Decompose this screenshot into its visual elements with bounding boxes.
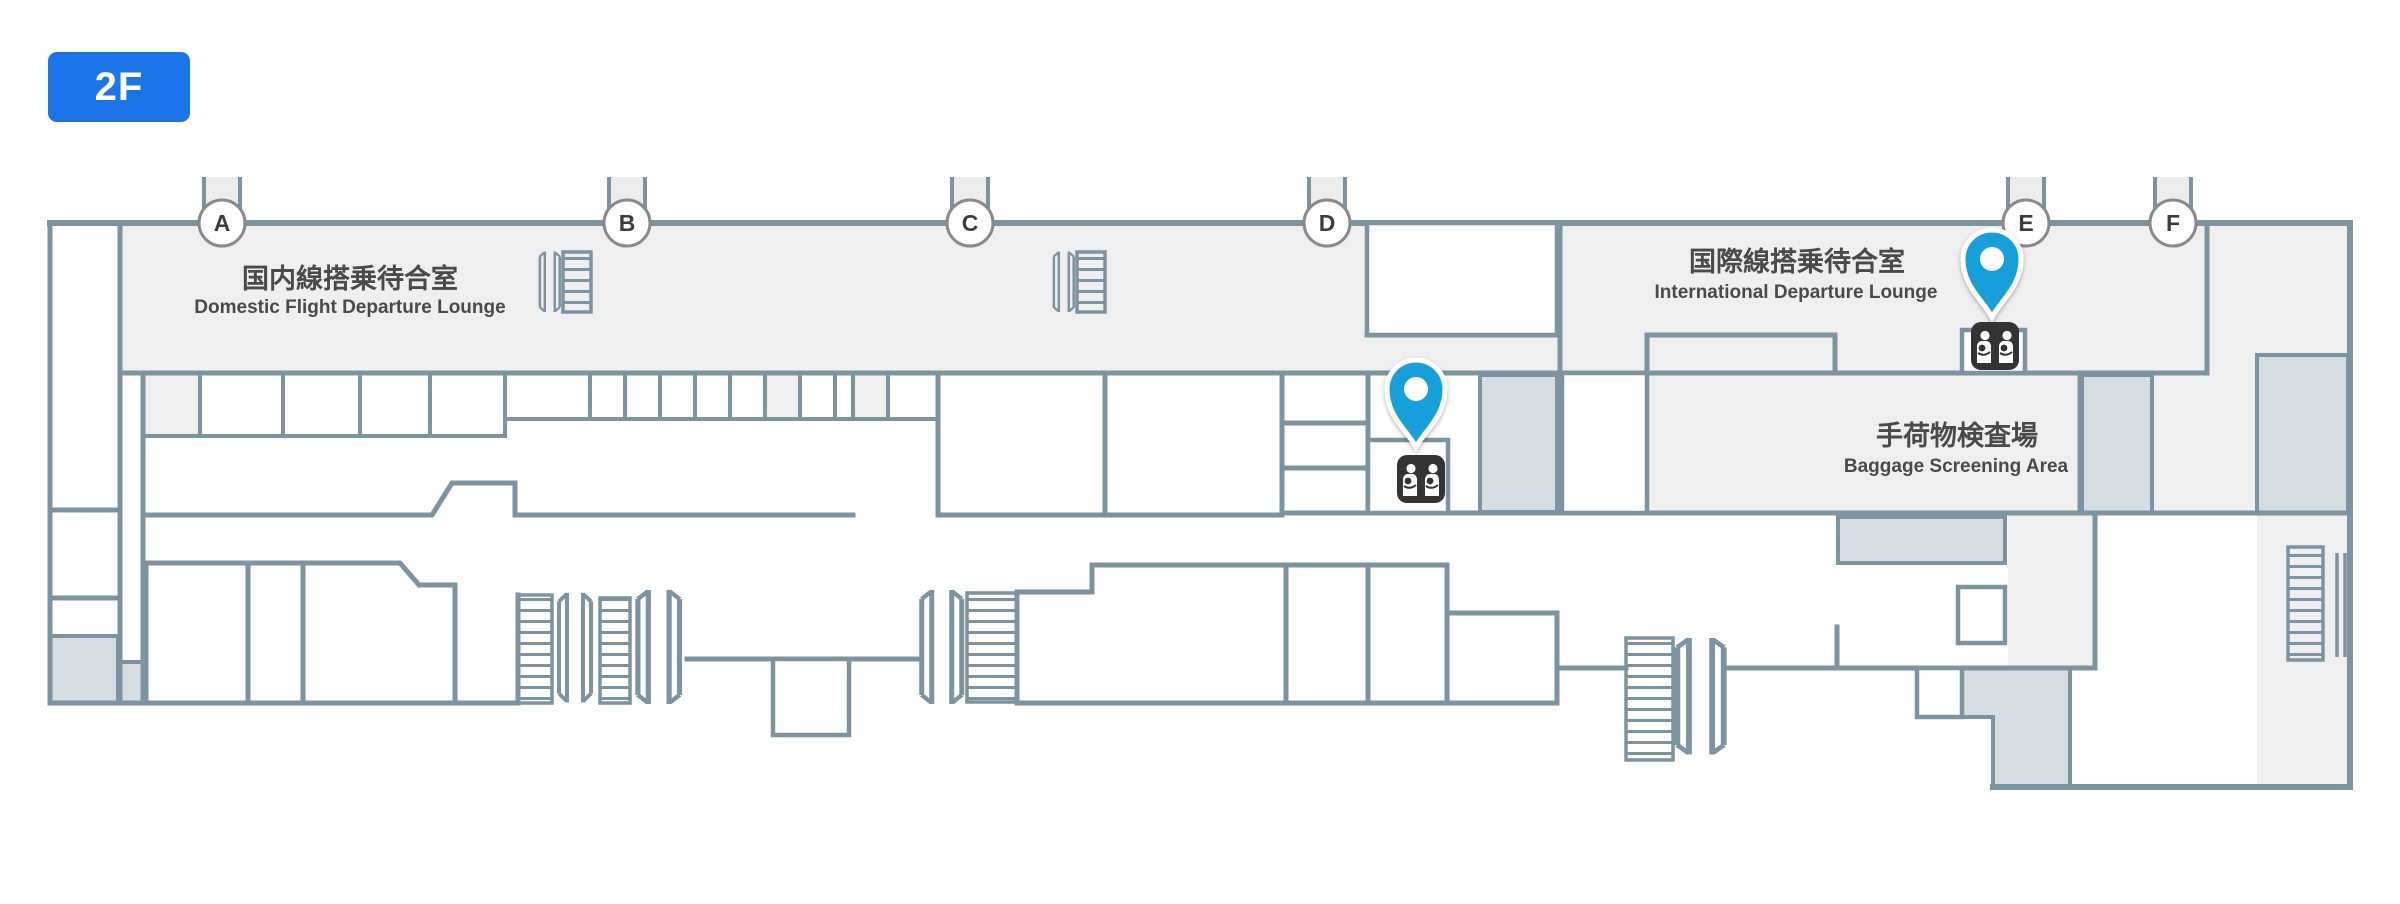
nursing-room-icon-near-e: [1971, 322, 2019, 370]
international-lounge-label-en: International Departure Lounge: [1655, 282, 1938, 303]
floor-map: 国内線搭乗待合室 Domestic Flight Departure Loung…: [0, 0, 2400, 904]
domestic-lounge-label-en: Domestic Flight Departure Lounge: [194, 297, 505, 318]
domestic-lounge-label-jp: 国内線搭乗待合室: [242, 263, 458, 294]
international-lounge-label-jp: 国際線搭乗待合室: [1689, 246, 1905, 277]
gate-d-label: D: [1319, 210, 1336, 236]
gate-f-label: F: [2166, 210, 2180, 236]
gate-b-label: B: [619, 210, 636, 236]
nursing-room-icon-near-d: [1397, 455, 1445, 503]
gate-a-label: A: [214, 210, 231, 236]
gate-marker-a[interactable]: A: [199, 200, 245, 246]
gate-c-label: C: [962, 210, 979, 236]
map-pin-nursing-near-d[interactable]: [1387, 360, 1445, 447]
gate-marker-c[interactable]: C: [947, 200, 993, 246]
gate-marker-d[interactable]: D: [1304, 200, 1350, 246]
gate-e-label: E: [2018, 210, 2033, 236]
baggage-screening-label-jp: 手荷物検査場: [1876, 421, 2038, 451]
baggage-screening-label-en: Baggage Screening Area: [1844, 456, 2069, 477]
gate-marker-b[interactable]: B: [604, 200, 650, 246]
jet-bridges: [204, 177, 2191, 223]
gate-marker-f[interactable]: F: [2150, 200, 2196, 246]
floor-map-page: 2F: [0, 0, 2400, 904]
